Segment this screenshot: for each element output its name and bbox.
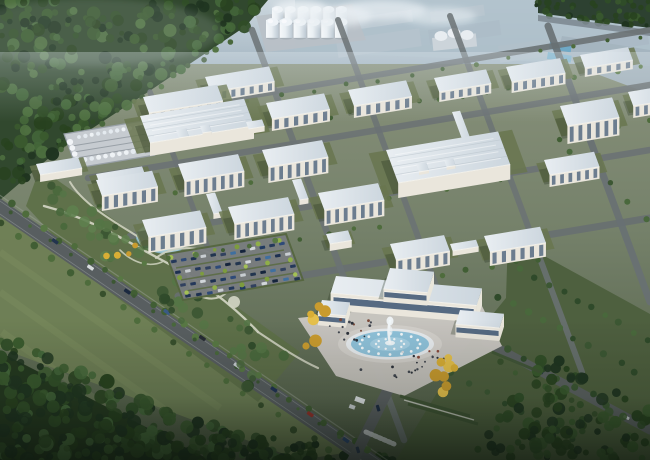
dome-3 [461,30,474,40]
park-plaza-circle [228,296,240,308]
scene-root [0,0,650,460]
scene-svg [0,0,650,460]
steam-plume-3 [404,7,476,25]
top-haze [0,52,650,122]
steam-plume-4 [274,0,326,16]
aerial-rendering-industrial-park [0,0,650,460]
vignette [0,320,650,460]
dome-1 [435,31,448,41]
